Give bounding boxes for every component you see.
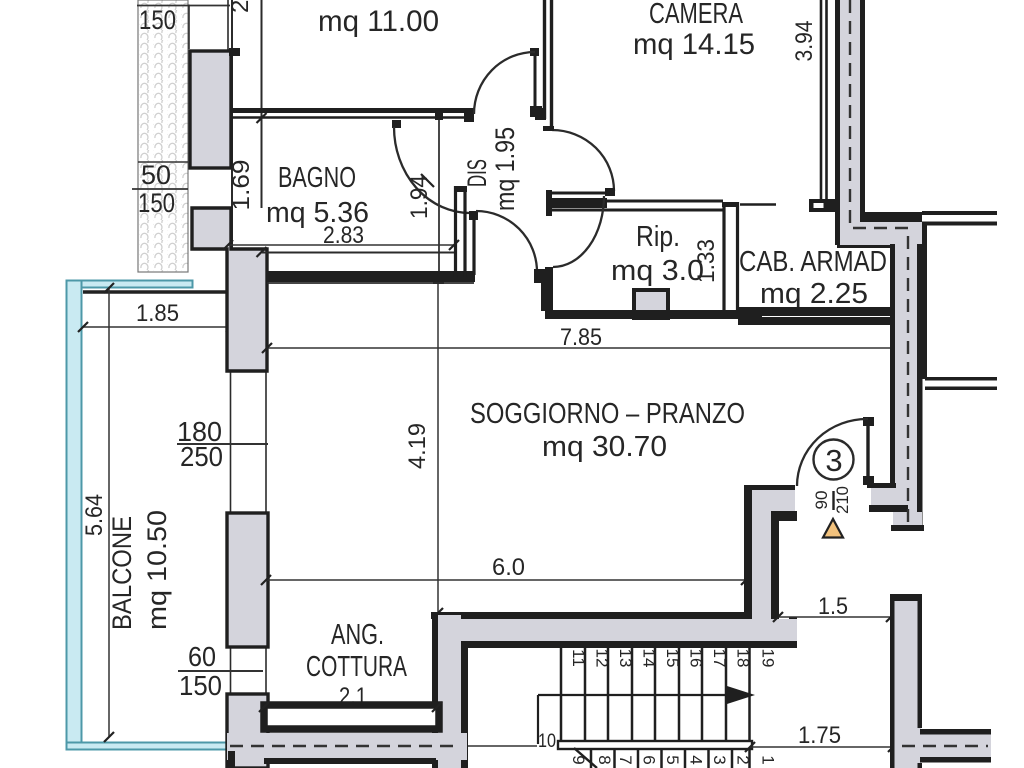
svg-text:DIS: DIS <box>462 159 492 187</box>
svg-text:5: 5 <box>663 755 682 764</box>
svg-text:ANG.: ANG. <box>331 619 384 651</box>
svg-text:mq 1.95: mq 1.95 <box>490 127 520 211</box>
svg-text:60: 60 <box>188 641 216 672</box>
svg-text:3: 3 <box>825 443 842 478</box>
svg-text:2.83: 2.83 <box>323 222 364 249</box>
svg-text:5.64: 5.64 <box>81 494 108 536</box>
svg-text:1.75: 1.75 <box>798 722 841 749</box>
svg-text:6.0: 6.0 <box>492 554 525 581</box>
svg-text:CAB. ARMAD: CAB. ARMAD <box>739 246 887 278</box>
svg-text:150: 150 <box>179 670 222 701</box>
svg-text:1: 1 <box>759 755 778 764</box>
svg-text:15: 15 <box>663 649 682 668</box>
svg-text:9: 9 <box>569 755 588 764</box>
svg-text:150: 150 <box>139 5 176 35</box>
svg-text:7.85: 7.85 <box>560 324 602 351</box>
svg-text:Rip.: Rip. <box>636 221 680 253</box>
svg-text:3: 3 <box>710 755 729 764</box>
svg-text:19: 19 <box>759 649 778 668</box>
svg-text:150: 150 <box>138 188 175 218</box>
svg-text:18: 18 <box>734 649 753 668</box>
svg-text:4.19: 4.19 <box>404 423 431 469</box>
svg-text:14: 14 <box>640 649 659 668</box>
svg-text:12: 12 <box>593 649 612 668</box>
svg-text:11: 11 <box>569 649 588 667</box>
svg-text:6: 6 <box>640 755 659 764</box>
svg-text:1.94: 1.94 <box>406 175 433 219</box>
svg-text:mq 14.15: mq 14.15 <box>633 28 755 61</box>
svg-text:50: 50 <box>141 160 171 190</box>
svg-text:BAGNO: BAGNO <box>278 162 356 194</box>
svg-text:2.: 2. <box>227 0 254 13</box>
svg-text:10: 10 <box>538 731 556 752</box>
svg-text:16: 16 <box>687 649 706 668</box>
svg-text:4: 4 <box>687 755 706 764</box>
svg-text:1.33: 1.33 <box>693 239 720 283</box>
svg-text:250: 250 <box>180 441 223 472</box>
svg-text:1.85: 1.85 <box>136 300 179 327</box>
svg-text:90: 90 <box>812 491 831 510</box>
svg-text:2: 2 <box>734 755 753 764</box>
svg-text:mq 30.70: mq 30.70 <box>542 431 667 463</box>
svg-text:mq 3.0: mq 3.0 <box>611 255 704 287</box>
svg-text:7: 7 <box>616 755 635 764</box>
svg-text:SOGGIORNO – PRANZO: SOGGIORNO – PRANZO <box>470 398 745 430</box>
svg-text:BALCONE: BALCONE <box>107 516 137 630</box>
svg-text:mq 11.00: mq 11.00 <box>318 5 439 38</box>
svg-text:3.94: 3.94 <box>791 21 818 62</box>
svg-text:13: 13 <box>616 649 635 668</box>
svg-text:CAMERA: CAMERA <box>649 0 743 30</box>
svg-text:210: 210 <box>833 486 852 514</box>
svg-text:COTTURA: COTTURA <box>306 651 407 683</box>
svg-text:1.5: 1.5 <box>818 593 848 620</box>
svg-text:8: 8 <box>595 755 614 764</box>
svg-text:17: 17 <box>710 649 729 668</box>
svg-text:1.69: 1.69 <box>228 160 255 211</box>
svg-text:mq 2.25: mq 2.25 <box>760 278 868 310</box>
svg-text:mq 10.50: mq 10.50 <box>142 510 172 630</box>
